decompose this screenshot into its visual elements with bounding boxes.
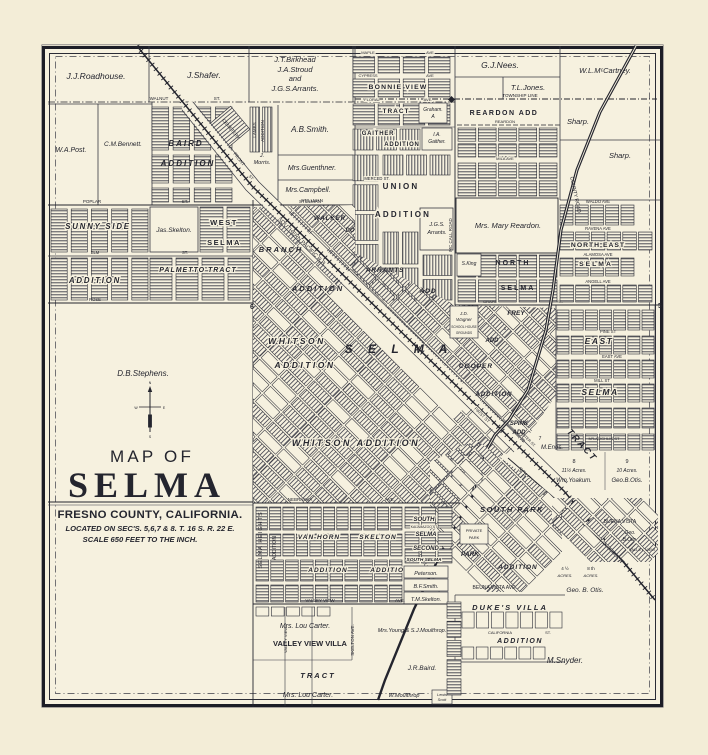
svg-text:AVE.: AVE. — [385, 497, 395, 502]
svg-text:8 th: 8 th — [587, 566, 595, 571]
svg-text:MᶜLAUGHLIN ST: MᶜLAUGHLIN ST — [589, 436, 621, 441]
svg-text:Peterson.: Peterson. — [414, 571, 438, 577]
svg-text:ACRES.: ACRES. — [583, 573, 599, 578]
svg-text:AVE.: AVE. — [395, 598, 405, 603]
svg-text:Scott: Scott — [438, 698, 448, 702]
svg-text:Geo.: Geo. — [625, 530, 636, 536]
svg-text:TRACT: TRACT — [382, 108, 409, 115]
svg-text:Gaither.: Gaither. — [428, 139, 446, 145]
svg-text:C.M.Bennett.: C.M.Bennett. — [104, 141, 142, 148]
svg-text:ADDITION: ADDITION — [369, 567, 409, 574]
svg-text:Mrs. Mary Reardon.: Mrs. Mary Reardon. — [475, 221, 541, 230]
svg-text:Mrs.Campbell.: Mrs.Campbell. — [285, 187, 330, 194]
svg-text:Geo. B. Otis.: Geo. B. Otis. — [566, 587, 603, 594]
svg-text:T.L.Jones.: T.L.Jones. — [511, 83, 545, 92]
svg-text:Arrants.: Arrants. — [426, 230, 446, 236]
svg-text:J.: J. — [259, 153, 264, 159]
svg-text:W.Moulthrop: W.Moulthrop — [389, 693, 420, 699]
svg-text:Mrs.Young & S.J.Moulthrop.: Mrs.Young & S.J.Moulthrop. — [378, 628, 446, 634]
svg-text:WHITSON ADDITION: WHITSON ADDITION — [292, 438, 420, 448]
svg-text:REARDON: REARDON — [495, 119, 515, 124]
svg-text:ALAMOSA AVE: ALAMOSA AVE — [583, 252, 612, 257]
svg-text:SCHOOL HOUSE: SCHOOL HOUSE — [451, 325, 477, 329]
svg-text:ADDITION: ADDITION — [497, 564, 537, 571]
svg-text:Jas.Skelton.: Jas.Skelton. — [155, 227, 192, 234]
svg-text:NORTH EAST: NORTH EAST — [571, 242, 625, 249]
svg-text:ADDITION: ADDITION — [384, 142, 419, 148]
svg-text:SELMA: SELMA — [207, 238, 241, 247]
svg-text:MAP OF: MAP OF — [110, 447, 194, 466]
svg-text:ADDITION: ADDITION — [160, 159, 216, 168]
svg-text:STILLMAN: STILLMAN — [301, 198, 323, 203]
svg-text:ARRANTS: ARRANTS — [365, 267, 405, 274]
svg-text:PALMETTO TRACT: PALMETTO TRACT — [159, 267, 237, 274]
svg-text:M.Snyder.: M.Snyder. — [547, 656, 583, 665]
svg-text:GROUNDS: GROUNDS — [456, 331, 472, 335]
svg-text:GAITHER: GAITHER — [362, 131, 395, 137]
svg-text:AVE.: AVE. — [424, 97, 433, 102]
svg-text:CALIFORNIA: CALIFORNIA — [488, 630, 512, 635]
svg-text:BAIRD: BAIRD — [168, 139, 203, 148]
svg-text:MERCED ST.: MERCED ST. — [364, 176, 389, 181]
svg-text:SOUTH: SOUTH — [414, 517, 436, 523]
svg-text:ST.: ST. — [545, 630, 551, 635]
svg-text:ST.: ST. — [214, 96, 221, 101]
svg-text:BONNIE VIEW: BONNIE VIEW — [369, 84, 428, 91]
svg-text:EAST AVE: EAST AVE — [602, 354, 622, 359]
svg-text:BEUNA VISTA AVE: BEUNA VISTA AVE — [473, 585, 517, 591]
svg-text:TRACT: TRACT — [300, 671, 335, 680]
svg-text:Mrs. Lou Carter.: Mrs. Lou Carter. — [283, 692, 333, 699]
svg-text:ADDITION: ADDITION — [375, 210, 431, 219]
svg-text:5: 5 — [658, 303, 662, 310]
svg-text:PRIVATE: PRIVATE — [466, 528, 483, 533]
svg-text:NORTH: NORTH — [496, 260, 531, 267]
svg-text:DO: DO — [346, 228, 355, 234]
svg-text:Mrs.Guenthner.: Mrs.Guenthner. — [288, 165, 336, 172]
svg-text:BRANCH: BRANCH — [259, 245, 304, 254]
svg-text:ROSE: ROSE — [89, 297, 101, 302]
svg-text:4 ½: 4 ½ — [561, 565, 569, 571]
svg-text:SPINK: SPINK — [510, 421, 529, 427]
svg-text:9: 9 — [625, 459, 628, 465]
svg-text:W.A.Post.: W.A.Post. — [56, 147, 87, 154]
svg-text:T.M.Skelton.: T.M.Skelton. — [411, 597, 441, 603]
svg-text:Geo.B.Otis.: Geo.B.Otis. — [611, 478, 642, 484]
svg-text:PARK: PARK — [461, 551, 480, 558]
svg-text:VALLEY VIEW: VALLEY VIEW — [305, 598, 335, 603]
svg-text:MILL ST: MILL ST — [594, 378, 610, 383]
svg-text:6: 6 — [250, 304, 254, 311]
svg-text:PINE ST: PINE ST — [600, 329, 617, 334]
svg-text:J.Shafer.: J.Shafer. — [186, 70, 221, 80]
svg-text:ADD: ADD — [485, 338, 500, 344]
svg-text:Lewis: Lewis — [437, 693, 447, 697]
svg-text:and: and — [289, 74, 302, 83]
svg-text:SELMA: SELMA — [579, 261, 613, 268]
svg-text:CYPRESS: CYPRESS — [358, 73, 377, 78]
svg-text:PARK: PARK — [469, 535, 480, 540]
svg-text:SELMA HEIGHTS: SELMA HEIGHTS — [258, 511, 264, 568]
svg-text:GRAPE: GRAPE — [483, 299, 497, 304]
svg-text:ELM: ELM — [91, 250, 100, 255]
svg-text:M.Enos.: M.Enos. — [541, 445, 563, 451]
svg-text:ANGELL AVE: ANGELL AVE — [585, 279, 611, 284]
svg-text:COOPER: COOPER — [459, 363, 493, 370]
svg-text:SCALE 650 FEET TO THE INCH.: SCALE 650 FEET TO THE INCH. — [83, 535, 198, 544]
svg-text:A.B.Smith.: A.B.Smith. — [290, 125, 329, 134]
svg-text:Sharp.: Sharp. — [567, 117, 589, 126]
svg-text:Graham.: Graham. — [423, 107, 442, 113]
svg-text:ADDITION: ADDITION — [496, 638, 543, 645]
svg-text:VALLEY VIEW: VALLEY VIEW — [283, 627, 288, 653]
svg-text:SKELTON AVE.: SKELTON AVE. — [350, 624, 355, 656]
svg-text:ST.: ST. — [182, 199, 189, 204]
svg-text:AVE: AVE — [426, 73, 434, 78]
svg-text:J.G.S.Arrants.: J.G.S.Arrants. — [270, 84, 318, 93]
svg-text:J.A.Stroud: J.A.Stroud — [276, 65, 313, 74]
svg-text:ADDITION: ADDITION — [307, 567, 347, 574]
svg-text:ADDITION: ADDITION — [68, 276, 121, 285]
svg-text:ADDITION: ADDITION — [475, 392, 513, 398]
svg-text:A: A — [430, 114, 435, 120]
svg-text:Wagner: Wagner — [456, 317, 472, 322]
svg-text:S E L M A: S E L M A — [345, 342, 454, 356]
svg-text:FLORAL: FLORAL — [364, 97, 380, 102]
svg-text:MILA AVE: MILA AVE — [496, 156, 514, 161]
svg-text:J.D.: J.D. — [459, 311, 468, 316]
svg-text:I.A.: I.A. — [433, 132, 441, 138]
svg-text:WALNUT: WALNUT — [150, 96, 169, 101]
svg-text:NEBRASKA: NEBRASKA — [288, 497, 313, 502]
svg-text:7: 7 — [539, 436, 542, 442]
svg-text:Wm.Yoakum.: Wm.Yoakum. — [556, 478, 592, 484]
svg-text:WALKER: WALKER — [314, 216, 346, 222]
svg-text:J.T.Birkhead: J.T.Birkhead — [273, 55, 316, 64]
svg-text:J.J.Roadhouse.: J.J.Roadhouse. — [65, 71, 125, 81]
svg-text:TOWNSHIP LINE: TOWNSHIP LINE — [502, 93, 537, 98]
svg-text:SKELTON: SKELTON — [359, 534, 396, 541]
svg-text:WEST: WEST — [210, 218, 238, 227]
svg-text:D.B.Stephens.: D.B.Stephens. — [117, 369, 169, 378]
svg-text:ADDITION: ADDITION — [273, 360, 335, 370]
svg-text:LAMBS: LAMBS — [252, 122, 257, 137]
svg-text:VALLEY VIEW: VALLEY VIEW — [629, 547, 655, 552]
svg-text:S.King: S.King — [462, 261, 477, 267]
svg-text:ST.: ST. — [182, 250, 188, 255]
svg-text:10 Acres.: 10 Acres. — [617, 468, 638, 474]
svg-text:SOUTH SELMA: SOUTH SELMA — [407, 557, 442, 563]
svg-text:B.Otis.: B.Otis. — [622, 537, 637, 543]
svg-text:ADDITION: ADDITION — [260, 120, 265, 142]
svg-text:VAN HORN: VAN HORN — [298, 534, 340, 541]
svg-text:MC CALL ROAD: MC CALL ROAD — [448, 217, 453, 251]
svg-text:UNION: UNION — [383, 182, 420, 191]
svg-text:J.G.S.: J.G.S. — [428, 222, 444, 228]
svg-text:SELMA: SELMA — [416, 532, 437, 538]
svg-text:ADDITION: ADDITION — [272, 536, 278, 560]
svg-text:MAPLE: MAPLE — [361, 50, 375, 55]
svg-text:DUKE'S VILLA: DUKE'S VILLA — [472, 603, 548, 612]
svg-text:POPLAR: POPLAR — [83, 199, 102, 204]
svg-text:FRESNO COUNTY, CALIFORNIA.: FRESNO COUNTY, CALIFORNIA. — [58, 509, 243, 521]
svg-text:ACRES.: ACRES. — [557, 573, 573, 578]
svg-text:AVE: AVE — [426, 50, 434, 55]
svg-text:Sharp.: Sharp. — [609, 151, 631, 160]
svg-text:SELMA: SELMA — [68, 465, 226, 505]
svg-text:LOCATED ON SEC'S. 5,6,7 & 8. T: LOCATED ON SEC'S. 5,6,7 & 8. T. 16 S. R.… — [65, 524, 234, 533]
svg-text:WHITSON: WHITSON — [268, 336, 326, 346]
svg-text:SELMA: SELMA — [581, 387, 618, 397]
svg-text:REARDON ADD: REARDON ADD — [470, 110, 539, 117]
svg-text:8: 8 — [572, 459, 575, 465]
svg-text:KALAMAZOO ST: KALAMAZOO ST — [411, 525, 437, 529]
svg-text:SELMA: SELMA — [501, 285, 536, 292]
svg-text:RAVENA AVE: RAVENA AVE — [585, 226, 611, 231]
svg-text:J.R.Baird.: J.R.Baird. — [407, 665, 437, 672]
svg-text:B.F.Smith.: B.F.Smith. — [414, 584, 439, 590]
svg-text:ADDITION: ADDITION — [291, 284, 344, 293]
svg-text:G.J.Nees.: G.J.Nees. — [481, 60, 519, 70]
svg-text:EAST: EAST — [585, 336, 614, 346]
svg-text:SECOND: SECOND — [413, 546, 439, 552]
svg-text:FREY: FREY — [507, 310, 525, 317]
svg-text:SUNNY SIDE: SUNNY SIDE — [65, 222, 131, 231]
svg-text:BUENA VISTA: BUENA VISTA — [604, 519, 637, 525]
svg-text:SOUTH PARK: SOUTH PARK — [480, 505, 544, 514]
svg-text:WALDO AVE: WALDO AVE — [586, 199, 610, 204]
svg-text:11½ Acres.: 11½ Acres. — [562, 467, 587, 474]
svg-text:ADD: ADD — [418, 288, 436, 295]
svg-text:Morris.: Morris. — [254, 160, 271, 166]
